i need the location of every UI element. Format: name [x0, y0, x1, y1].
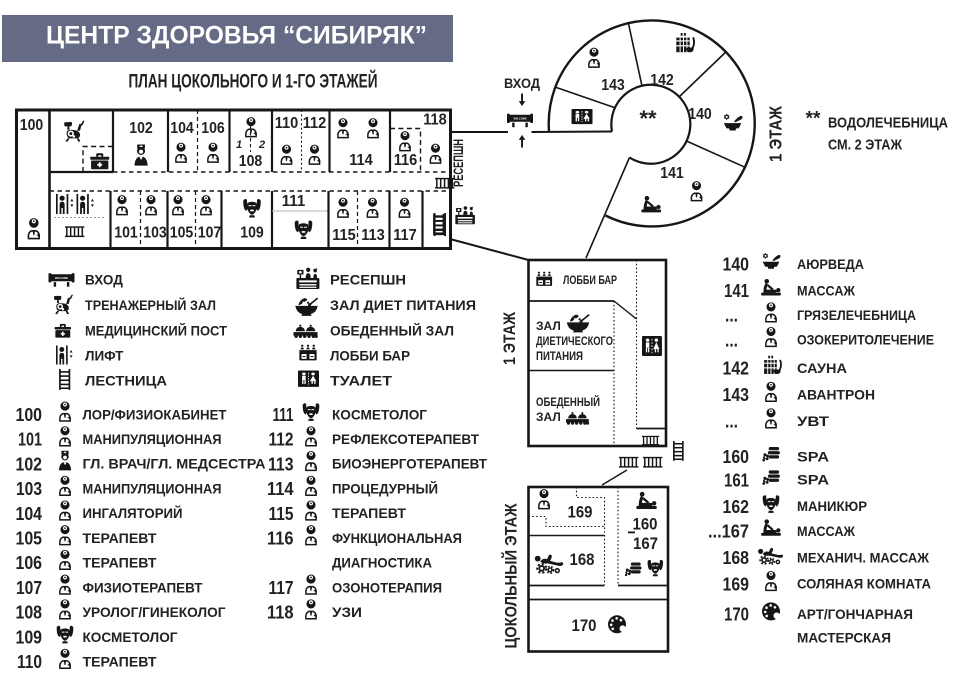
- svg-text:ВХОД: ВХОД: [504, 76, 540, 91]
- svg-text:104: 104: [16, 504, 43, 524]
- svg-text:АВАНТРОН: АВАНТРОН: [797, 388, 875, 403]
- svg-text:143: 143: [601, 77, 625, 94]
- svg-text:104: 104: [170, 120, 194, 137]
- svg-text:108: 108: [239, 153, 263, 170]
- svg-text:ДИЕТИЧЕСКОГО: ДИЕТИЧЕСКОГО: [536, 334, 613, 348]
- svg-text:МЕХАНИЧ. МАССАЖ: МЕХАНИЧ. МАССАЖ: [797, 550, 930, 565]
- svg-text:102: 102: [16, 454, 43, 474]
- svg-text:113: 113: [268, 454, 294, 474]
- svg-text:**: **: [639, 106, 657, 131]
- svg-text:162: 162: [723, 497, 750, 517]
- svg-text:107: 107: [16, 578, 42, 598]
- svg-text:108: 108: [16, 603, 43, 623]
- svg-text:...167: ...167: [708, 521, 749, 541]
- svg-text:МАСТЕРСКАЯ: МАСТЕРСКАЯ: [797, 630, 891, 645]
- svg-text:...: ...: [725, 330, 738, 350]
- svg-text:169: 169: [568, 503, 593, 522]
- svg-text:167: 167: [633, 534, 658, 553]
- svg-text:170: 170: [572, 616, 597, 635]
- svg-text:115: 115: [269, 504, 294, 524]
- svg-text:109: 109: [240, 225, 264, 242]
- svg-text:110: 110: [17, 652, 42, 672]
- svg-text:МАССАЖ: МАССАЖ: [797, 524, 856, 539]
- svg-text:АЮРВЕДА: АЮРВЕДА: [797, 257, 864, 272]
- svg-text:ЛОББИ БАР: ЛОББИ БАР: [330, 349, 410, 364]
- svg-text:116: 116: [394, 152, 418, 169]
- svg-text:РЕСЕПШН: РЕСЕПШН: [330, 273, 406, 288]
- svg-text:117: 117: [393, 227, 417, 244]
- svg-text:ФУНКЦИОНАЛЬНАЯ: ФУНКЦИОНАЛЬНАЯ: [332, 531, 462, 546]
- svg-text:103: 103: [16, 479, 42, 499]
- svg-text:106: 106: [16, 553, 43, 573]
- svg-text:СМ. 2 ЭТАЖ: СМ. 2 ЭТАЖ: [828, 137, 902, 154]
- svg-text:ПЛАН ЦОКОЛЬНОГО И 1-ГО ЭТАЖЕЙ: ПЛАН ЦОКОЛЬНОГО И 1-ГО ЭТАЖЕЙ: [129, 71, 378, 93]
- svg-text:БИОЭНЕРГОТЕРАПЕВТ: БИОЭНЕРГОТЕРАПЕВТ: [332, 457, 488, 472]
- svg-text:SPA: SPA: [797, 473, 829, 488]
- svg-text:112: 112: [303, 115, 327, 132]
- svg-text:**: **: [806, 109, 821, 130]
- svg-text:111: 111: [282, 193, 306, 210]
- svg-text:ЛИФТ: ЛИФТ: [85, 349, 124, 364]
- svg-text:ВХОД: ВХОД: [85, 273, 123, 288]
- svg-text:УРОЛОГ/ГИНЕКОЛОГ: УРОЛОГ/ГИНЕКОЛОГ: [83, 605, 226, 620]
- svg-text:105: 105: [170, 225, 194, 242]
- svg-text:100: 100: [20, 117, 44, 134]
- svg-text:КОСМЕТОЛОГ: КОСМЕТОЛОГ: [83, 630, 178, 645]
- svg-text:ПИТАНИЯ: ПИТАНИЯ: [536, 349, 583, 363]
- svg-text:141: 141: [660, 165, 684, 182]
- svg-text:ЦОКОЛЬНЫЙ ЭТАЖ: ЦОКОЛЬНЫЙ ЭТАЖ: [502, 503, 521, 649]
- svg-text:118: 118: [423, 112, 447, 129]
- svg-text:101: 101: [18, 430, 42, 450]
- svg-text:ОЗОНОТЕРАПИЯ: ОЗОНОТЕРАПИЯ: [332, 580, 442, 595]
- svg-text:143: 143: [723, 385, 750, 405]
- svg-text:101: 101: [114, 225, 138, 242]
- svg-text:112: 112: [269, 430, 294, 450]
- svg-text:114: 114: [349, 152, 373, 169]
- svg-text:1 ЭТАЖ: 1 ЭТАЖ: [766, 106, 786, 162]
- svg-text:109: 109: [16, 627, 43, 647]
- svg-text:110: 110: [275, 115, 299, 132]
- svg-text:ТЕРАПЕВТ: ТЕРАПЕВТ: [83, 655, 158, 670]
- svg-text:ТРЕНАЖЕРНЫЙ ЗАЛ: ТРЕНАЖЕРНЫЙ ЗАЛ: [85, 298, 216, 313]
- svg-text:СОЛЯНАЯ КОМНАТА: СОЛЯНАЯ КОМНАТА: [797, 577, 931, 592]
- svg-text:ДИАГНОСТИКА: ДИАГНОСТИКА: [332, 556, 432, 571]
- svg-text:170: 170: [724, 605, 749, 625]
- svg-text:ОБЕДЕННЫЙ ЗАЛ: ОБЕДЕННЫЙ ЗАЛ: [330, 324, 454, 339]
- svg-text:160: 160: [723, 447, 750, 467]
- svg-text:ФИЗИОТЕРАПЕВТ: ФИЗИОТЕРАПЕВТ: [83, 580, 204, 595]
- svg-text:115: 115: [332, 227, 356, 244]
- svg-text:МАНИПУЛЯЦИОННАЯ: МАНИПУЛЯЦИОННАЯ: [83, 432, 222, 447]
- svg-text:УВТ: УВТ: [797, 414, 830, 429]
- svg-text:КОСМЕТОЛОГ: КОСМЕТОЛОГ: [332, 407, 427, 422]
- svg-text:ОБЕДЕННЫЙ: ОБЕДЕННЫЙ: [536, 394, 600, 409]
- svg-text:УЗИ: УЗИ: [332, 605, 362, 620]
- svg-text:140: 140: [688, 106, 712, 123]
- svg-text:ЛОББИ БАР: ЛОББИ БАР: [563, 273, 617, 287]
- svg-text:141: 141: [724, 281, 749, 301]
- svg-text:105: 105: [16, 529, 43, 549]
- svg-text:ТЕРАПЕВТ: ТЕРАПЕВТ: [332, 506, 407, 521]
- svg-text:ВОДОЛЕЧЕБНИЦА: ВОДОЛЕЧЕБНИЦА: [828, 115, 948, 132]
- svg-text:1 ЭТАЖ: 1 ЭТАЖ: [500, 311, 519, 365]
- svg-text:АРТ/ГОНЧАРНАЯ: АРТ/ГОНЧАРНАЯ: [797, 607, 913, 622]
- svg-text:РЕФЛЕКСОТЕРАПЕВТ: РЕФЛЕКСОТЕРАПЕВТ: [332, 432, 480, 447]
- svg-text:ОЗОКЕРИТОЛЕЧЕНИЕ: ОЗОКЕРИТОЛЕЧЕНИЕ: [797, 333, 934, 348]
- svg-text:ЗАЛ: ЗАЛ: [536, 410, 561, 424]
- svg-text:168: 168: [570, 550, 595, 569]
- svg-text:103: 103: [143, 225, 167, 242]
- svg-text:ПРОЦЕДУРНЫЙ: ПРОЦЕДУРНЫЙ: [332, 482, 438, 497]
- svg-text:ЗАЛ: ЗАЛ: [536, 319, 561, 333]
- svg-text:...: ...: [725, 412, 738, 432]
- svg-text:МАНИПУЛЯЦИОННАЯ: МАНИПУЛЯЦИОННАЯ: [83, 482, 222, 497]
- svg-text:114: 114: [267, 479, 294, 499]
- svg-text:ЛЕСТНИЦА: ЛЕСТНИЦА: [85, 374, 167, 389]
- svg-text:МАССАЖ: МАССАЖ: [797, 284, 856, 299]
- svg-text:МЕДИЦИНСКИЙ ПОСТ: МЕДИЦИНСКИЙ ПОСТ: [85, 324, 228, 339]
- svg-text:РЕСЕПШН: РЕСЕПШН: [451, 139, 466, 187]
- svg-text:161: 161: [724, 470, 749, 490]
- svg-text:МАНИКЮР: МАНИКЮР: [797, 499, 867, 514]
- svg-text:111: 111: [273, 405, 294, 425]
- svg-text:107: 107: [198, 225, 222, 242]
- svg-text:...: ...: [725, 306, 738, 326]
- svg-text:ГРЯЗЕЛЕЧЕБНИЦА: ГРЯЗЕЛЕЧЕБНИЦА: [797, 308, 916, 323]
- svg-text:ЛОР/ФИЗИОКАБИНЕТ: ЛОР/ФИЗИОКАБИНЕТ: [83, 407, 228, 422]
- svg-text:113: 113: [361, 227, 385, 244]
- svg-text:116: 116: [267, 529, 294, 549]
- svg-text:100: 100: [16, 405, 43, 425]
- svg-text:118: 118: [267, 603, 294, 623]
- svg-text:ЗАЛ ДИЕТ ПИТАНИЯ: ЗАЛ ДИЕТ ПИТАНИЯ: [330, 298, 476, 313]
- svg-text:142: 142: [723, 359, 750, 379]
- svg-text:2: 2: [258, 139, 265, 151]
- svg-text:140: 140: [723, 255, 750, 275]
- svg-text:106: 106: [201, 120, 225, 137]
- svg-text:142: 142: [650, 72, 674, 89]
- svg-text:169: 169: [723, 574, 750, 594]
- svg-text:САУНА: САУНА: [797, 361, 847, 376]
- svg-text:102: 102: [129, 120, 153, 137]
- svg-text:ЦЕНТР ЗДОРОВЬЯ “СИБИРЯК”: ЦЕНТР ЗДОРОВЬЯ “СИБИРЯК”: [46, 22, 427, 50]
- svg-text:ТУАЛЕТ: ТУАЛЕТ: [330, 374, 393, 389]
- svg-text:ТЕРАПЕВТ: ТЕРАПЕВТ: [83, 531, 158, 546]
- svg-text:1: 1: [236, 139, 242, 151]
- svg-text:117: 117: [269, 578, 294, 598]
- svg-text:168: 168: [723, 548, 750, 568]
- svg-text:ТЕРАПЕВТ: ТЕРАПЕВТ: [83, 556, 158, 571]
- svg-text:SPA: SPA: [797, 449, 829, 464]
- svg-text:ИНГАЛЯТОРИЙ: ИНГАЛЯТОРИЙ: [83, 506, 183, 521]
- svg-text:ГЛ. ВРАЧ/ГЛ. МЕДСЕСТРА: ГЛ. ВРАЧ/ГЛ. МЕДСЕСТРА: [83, 457, 266, 472]
- svg-text:160: 160: [633, 515, 658, 534]
